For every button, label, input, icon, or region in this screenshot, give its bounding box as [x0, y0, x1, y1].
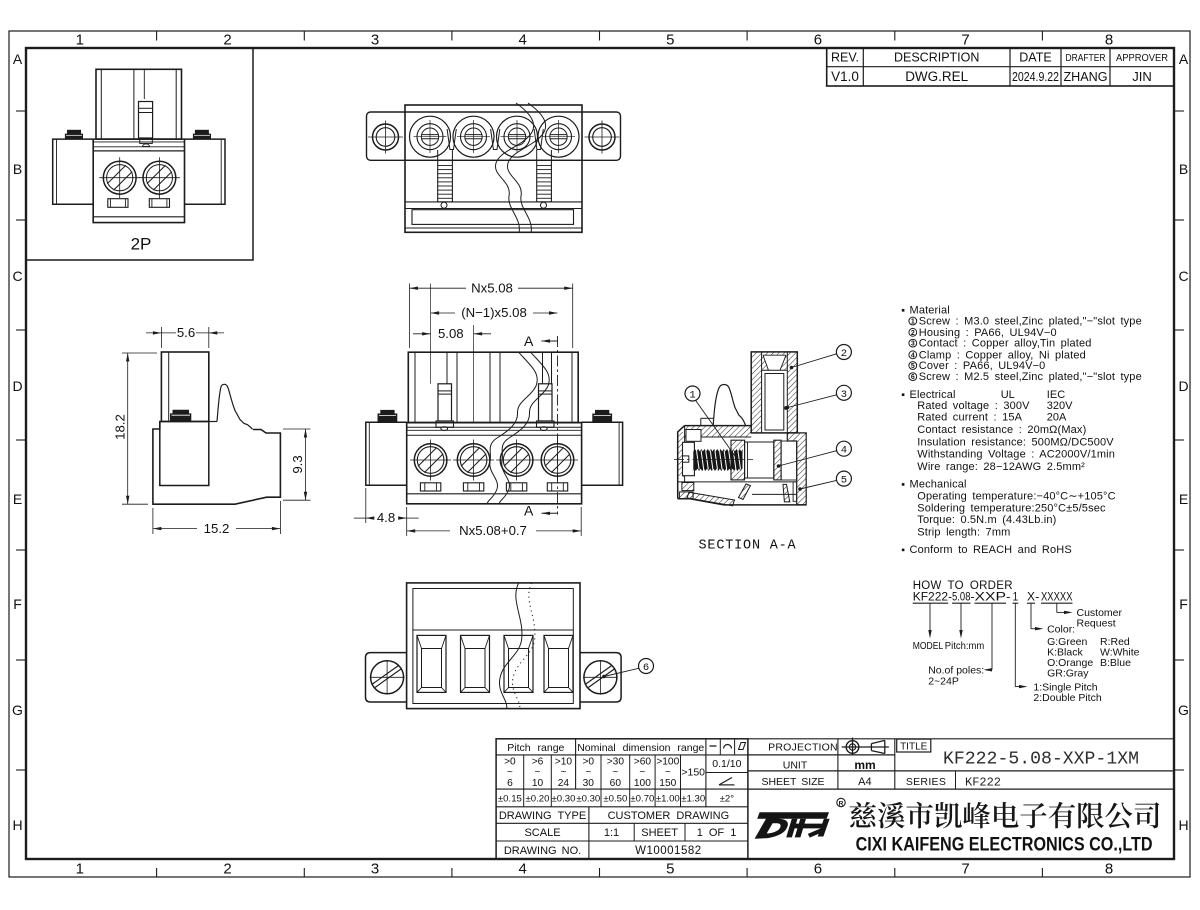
- svg-text:A4: A4: [858, 776, 871, 788]
- svg-text:KF222: KF222: [965, 775, 1001, 789]
- svg-text:A: A: [524, 503, 534, 519]
- svg-text:Pitch range: Pitch range: [507, 742, 564, 754]
- svg-text:±0.30: ±0.30: [551, 794, 575, 805]
- svg-text:1 OF 1: 1 OF 1: [697, 827, 737, 839]
- svg-text:PROJECTION: PROJECTION: [768, 741, 838, 753]
- svg-text:3: 3: [841, 389, 847, 401]
- svg-text:5.6: 5.6: [177, 325, 195, 340]
- svg-text:G: G: [12, 702, 23, 718]
- svg-text:Nx5.08: Nx5.08: [471, 280, 513, 295]
- svg-text:18.2: 18.2: [113, 414, 128, 440]
- svg-text:CIXI KAIFENG ELECTRONICS CO.,L: CIXI KAIFENG ELECTRONICS CO.,LTD: [856, 835, 1153, 856]
- svg-text:5.08: 5.08: [952, 589, 971, 603]
- svg-text:E: E: [13, 491, 22, 507]
- svg-text:A: A: [13, 51, 23, 67]
- svg-text:>0: >0: [504, 757, 516, 768]
- svg-text:2: 2: [223, 32, 231, 49]
- svg-text:Contact resistance : 20mΩ(Max): Contact resistance : 20mΩ(Max): [917, 424, 1086, 436]
- svg-text:>0: >0: [582, 757, 594, 768]
- svg-text:~: ~: [560, 767, 566, 778]
- svg-text:5: 5: [666, 32, 674, 49]
- svg-text:B: B: [13, 161, 22, 177]
- svg-text:D: D: [1178, 378, 1188, 394]
- svg-text:>150: >150: [681, 767, 705, 779]
- svg-text:TITLE: TITLE: [900, 741, 928, 752]
- svg-text:4: 4: [911, 352, 915, 359]
- svg-text:1:1: 1:1: [604, 827, 619, 839]
- svg-text:Conform to REACH and RoHS: Conform to REACH and RoHS: [910, 544, 1072, 556]
- svg-text:GR:Gray: GR:Gray: [1047, 667, 1089, 679]
- svg-text:5: 5: [841, 475, 847, 487]
- svg-text:>100: >100: [656, 757, 679, 768]
- svg-text:Rated voltage : 300V: Rated voltage : 300V: [917, 400, 1030, 412]
- svg-text:DATE: DATE: [1019, 51, 1051, 65]
- svg-text:V1.0: V1.0: [831, 69, 859, 84]
- svg-text:±0.30: ±0.30: [576, 794, 600, 805]
- svg-text:4.8: 4.8: [377, 510, 395, 525]
- svg-text:ZHANG: ZHANG: [1064, 70, 1108, 84]
- svg-text:E: E: [1179, 491, 1188, 507]
- svg-text:DRAFTER: DRAFTER: [1066, 52, 1106, 64]
- svg-text:4: 4: [519, 861, 527, 878]
- svg-text:SHEET: SHEET: [641, 827, 678, 839]
- svg-text:H: H: [12, 817, 22, 833]
- svg-text:-: -: [1035, 589, 1039, 603]
- svg-text:20A: 20A: [1047, 411, 1067, 423]
- svg-text:C: C: [12, 268, 22, 284]
- svg-text:2~24P: 2~24P: [928, 675, 959, 687]
- svg-text:5: 5: [666, 861, 674, 878]
- svg-text:3: 3: [911, 341, 915, 348]
- svg-text:Torque: 0.5N.m (4.43Lb.in): Torque: 0.5N.m (4.43Lb.in): [917, 514, 1056, 526]
- svg-text:2: 2: [911, 330, 915, 337]
- svg-text:6: 6: [814, 32, 822, 49]
- svg-text:±0.15: ±0.15: [498, 794, 522, 805]
- svg-text:CUSTOMER DRAWING: CUSTOMER DRAWING: [608, 810, 730, 822]
- svg-text:6: 6: [507, 778, 513, 789]
- svg-text:A: A: [524, 333, 534, 349]
- svg-text:0.1/10: 0.1/10: [712, 758, 741, 770]
- svg-text:SECTION A-A: SECTION A-A: [699, 539, 797, 554]
- svg-text:>10: >10: [555, 757, 573, 768]
- svg-text:>30: >30: [607, 757, 625, 768]
- svg-text:150: 150: [659, 778, 676, 789]
- svg-text:±0.70: ±0.70: [630, 794, 654, 805]
- svg-text:±2°: ±2°: [720, 794, 735, 805]
- svg-text:Request: Request: [1077, 618, 1116, 630]
- svg-text:~: ~: [507, 767, 513, 778]
- svg-text:Nx5.08+0.7: Nx5.08+0.7: [459, 523, 527, 538]
- svg-text:B:Blue: B:Blue: [1100, 657, 1131, 669]
- svg-text:2P: 2P: [131, 235, 152, 254]
- svg-text:Withstanding Voltage : AC2000V: Withstanding Voltage : AC2000V/1min: [917, 449, 1115, 461]
- svg-text:W10001582: W10001582: [635, 845, 702, 857]
- svg-text:±1.30: ±1.30: [681, 794, 705, 805]
- svg-text:±0.20: ±0.20: [526, 794, 550, 805]
- svg-text:6: 6: [814, 861, 822, 878]
- svg-text:>6: >6: [532, 757, 544, 768]
- svg-text:3: 3: [371, 861, 379, 878]
- svg-text:30: 30: [583, 778, 595, 789]
- svg-text:KF222: KF222: [913, 589, 949, 603]
- svg-text:Screw : M2.5 steel,Zinc plated: Screw : M2.5 steel,Zinc plated,"−"slot t…: [919, 371, 1142, 383]
- svg-text:-: -: [1006, 589, 1011, 603]
- svg-text:100: 100: [634, 778, 651, 789]
- svg-text:6: 6: [911, 374, 915, 381]
- svg-text:320V: 320V: [1047, 400, 1073, 412]
- svg-text:5: 5: [911, 363, 915, 370]
- svg-text:60: 60: [610, 778, 622, 789]
- svg-text:7: 7: [961, 861, 969, 878]
- svg-text:Screw : M3.0 steel,Zinc plated: Screw : M3.0 steel,Zinc plated,"−"slot t…: [919, 316, 1142, 328]
- svg-text:Insulation resistance: 500MΩ/D: Insulation resistance: 500MΩ/DC500V: [917, 436, 1114, 448]
- svg-text:15.2: 15.2: [204, 521, 230, 536]
- svg-text:DWG.REL: DWG.REL: [905, 69, 968, 84]
- svg-text:MODEL: MODEL: [913, 641, 944, 652]
- svg-text:mm: mm: [854, 758, 875, 772]
- svg-text:>60: >60: [634, 757, 652, 768]
- svg-text:8: 8: [1105, 32, 1113, 49]
- svg-text:~: ~: [585, 767, 591, 778]
- svg-text:(N−1)x5.08: (N−1)x5.08: [461, 305, 527, 320]
- svg-text:4: 4: [841, 445, 847, 457]
- svg-text:1: 1: [689, 390, 695, 402]
- svg-text:DRAWING NO.: DRAWING NO.: [504, 845, 581, 857]
- svg-text:2024.9.22: 2024.9.22: [1012, 70, 1059, 84]
- svg-text:F: F: [13, 596, 22, 612]
- svg-text:5.08: 5.08: [438, 326, 464, 341]
- svg-text:XXXXX: XXXXX: [1041, 589, 1073, 603]
- svg-text:6: 6: [643, 662, 649, 674]
- svg-text:Pitch:mm: Pitch:mm: [945, 641, 985, 652]
- svg-text:1: 1: [76, 861, 84, 878]
- svg-text:3: 3: [371, 32, 379, 49]
- svg-text:D: D: [12, 378, 22, 394]
- svg-text:~: ~: [639, 767, 645, 778]
- svg-text:SERIES: SERIES: [906, 776, 946, 788]
- svg-text:JIN: JIN: [1132, 69, 1152, 84]
- svg-text:~: ~: [665, 767, 671, 778]
- svg-text:10: 10: [532, 778, 544, 789]
- svg-text:Nominal dimension range: Nominal dimension range: [577, 742, 704, 754]
- svg-text:8: 8: [1105, 861, 1113, 878]
- svg-text:1: 1: [911, 319, 915, 326]
- svg-text:~: ~: [535, 767, 541, 778]
- svg-text:2: 2: [223, 861, 231, 878]
- svg-text:Color:: Color:: [1047, 624, 1075, 636]
- svg-text:UNIT: UNIT: [783, 760, 808, 772]
- svg-text:F: F: [1179, 596, 1188, 612]
- svg-text:24: 24: [558, 778, 570, 789]
- svg-text:1: 1: [1013, 589, 1019, 603]
- svg-text:C: C: [1178, 268, 1188, 284]
- svg-text:Soldering temperature:250°C±5/: Soldering temperature:250°C±5/5sec: [917, 502, 1106, 514]
- svg-text:7: 7: [961, 32, 969, 49]
- svg-text:G: G: [1178, 702, 1189, 718]
- svg-text:±0.50: ±0.50: [603, 794, 627, 805]
- svg-text:Contact : Copper alloy,Tin pla: Contact : Copper alloy,Tin plated: [919, 338, 1092, 350]
- svg-text:Rated current : 15A: Rated current : 15A: [917, 411, 1022, 423]
- svg-text:9.3: 9.3: [290, 455, 305, 473]
- svg-text:B: B: [1179, 161, 1188, 177]
- svg-text:Mechanical: Mechanical: [910, 479, 967, 491]
- svg-text:H: H: [1178, 817, 1188, 833]
- svg-text:KF222-5.08-XXP-1XM: KF222-5.08-XXP-1XM: [943, 749, 1139, 770]
- svg-text:Strip length: 7mm: Strip length: 7mm: [917, 527, 1010, 539]
- svg-text:DESCRIPTION: DESCRIPTION: [894, 51, 979, 65]
- svg-text:REV.: REV.: [831, 51, 859, 65]
- svg-text:2:Double Pitch: 2:Double Pitch: [1033, 692, 1101, 704]
- svg-text:Wire range: 28−12AWG 2.5mm²: Wire range: 28−12AWG 2.5mm²: [917, 461, 1085, 473]
- svg-text:±1.00: ±1.00: [656, 794, 680, 805]
- svg-text:XXP: XXP: [975, 589, 1007, 603]
- svg-text:1: 1: [76, 32, 84, 49]
- svg-text:X: X: [1027, 589, 1035, 603]
- svg-text:DRAWING TYPE: DRAWING TYPE: [499, 810, 586, 822]
- svg-text:~: ~: [612, 767, 618, 778]
- svg-text:SHEET SIZE: SHEET SIZE: [761, 776, 824, 788]
- svg-text:Operating temperature:−40°C∼+1: Operating temperature:−40°C∼+105°C: [917, 490, 1115, 502]
- svg-text:APPROVER: APPROVER: [1116, 52, 1168, 64]
- svg-text:A: A: [1179, 51, 1189, 67]
- svg-text:SCALE: SCALE: [524, 827, 560, 839]
- svg-text:R: R: [839, 800, 844, 807]
- svg-text:2: 2: [841, 348, 847, 360]
- svg-text:4: 4: [519, 32, 527, 49]
